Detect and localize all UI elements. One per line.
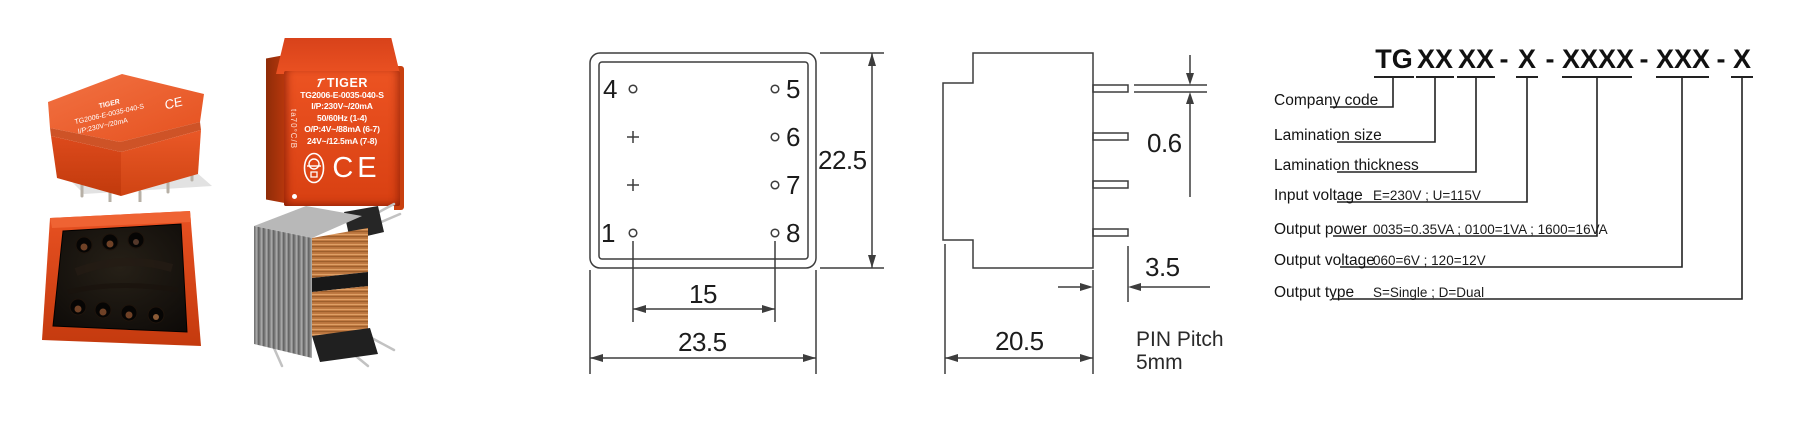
code-group-lam-size: XX	[1416, 43, 1454, 78]
code-group-output-type: X	[1731, 43, 1753, 78]
legend-row-lamination-size: Lamination size	[1274, 127, 1382, 143]
legend-label: Input voltage	[1274, 187, 1363, 204]
dim-width-23-5: 23.5	[678, 329, 727, 355]
legend-label: Output power	[1274, 221, 1367, 238]
dim-pin-span-15: 15	[689, 281, 717, 307]
code-separator: -	[1497, 43, 1511, 76]
dimension-arrowheads	[590, 53, 1194, 362]
code-group-company: TG	[1374, 43, 1414, 78]
legend-value: 0035=0.35VA ; 0100=1VA ; 1600=16VA	[1373, 222, 1608, 237]
legend-row-company-code: Company code	[1274, 92, 1378, 108]
top-view-drawing	[590, 53, 884, 374]
pin-pitch-value: 5mm	[1136, 351, 1183, 374]
legend-row-output-voltage: Output voltage 060=6V ; 120=12V	[1274, 252, 1375, 268]
legend-label: Lamination size	[1274, 127, 1382, 144]
legend-label: Lamination thickness	[1274, 157, 1419, 174]
code-group-output-power: XXXX	[1562, 43, 1632, 78]
dim-body-depth-20-5: 20.5	[995, 328, 1044, 354]
code-separator: -	[1714, 43, 1728, 76]
code-separator: -	[1637, 43, 1651, 76]
legend-row-input-voltage: Input voltage E=230V ; U=115V	[1274, 187, 1363, 203]
legend-label: Output type	[1274, 284, 1354, 301]
pin-label-1: 1	[601, 220, 615, 246]
pin-label-4: 4	[603, 76, 617, 102]
dim-height-22-5: 22.5	[818, 147, 867, 173]
legend-row-output-type: Output type S=Single ; D=Dual	[1274, 284, 1354, 300]
datasheet-page: TIGER TG2006-E-0035-040-S I/P:230V~/20mA…	[0, 0, 1800, 425]
dim-pin-thickness-0-6: 0.6	[1147, 130, 1182, 156]
code-group-lam-thick: XX	[1457, 43, 1495, 78]
pin-label-8: 8	[786, 220, 800, 246]
code-group-output-voltage: XXX	[1656, 43, 1709, 78]
legend-value: E=230V ; U=115V	[1373, 188, 1481, 203]
pin-pitch-label: PIN Pitch	[1136, 328, 1224, 351]
legend-value: 060=6V ; 120=12V	[1373, 253, 1486, 268]
pin-label-7: 7	[786, 172, 800, 198]
legend-row-output-power: Output power 0035=0.35VA ; 0100=1VA ; 16…	[1274, 221, 1367, 237]
code-group-input-voltage: X	[1516, 43, 1538, 78]
side-view-drawing	[943, 53, 1210, 374]
legend-label: Output voltage	[1274, 252, 1375, 269]
legend-row-lamination-thickness: Lamination thickness	[1274, 157, 1419, 173]
pin-label-6: 6	[786, 124, 800, 150]
pin-label-5: 5	[786, 76, 800, 102]
dim-pin-length-3-5: 3.5	[1145, 254, 1180, 280]
legend-value: S=Single ; D=Dual	[1373, 285, 1484, 300]
legend-label: Company code	[1274, 92, 1378, 109]
code-separator: -	[1543, 43, 1557, 76]
